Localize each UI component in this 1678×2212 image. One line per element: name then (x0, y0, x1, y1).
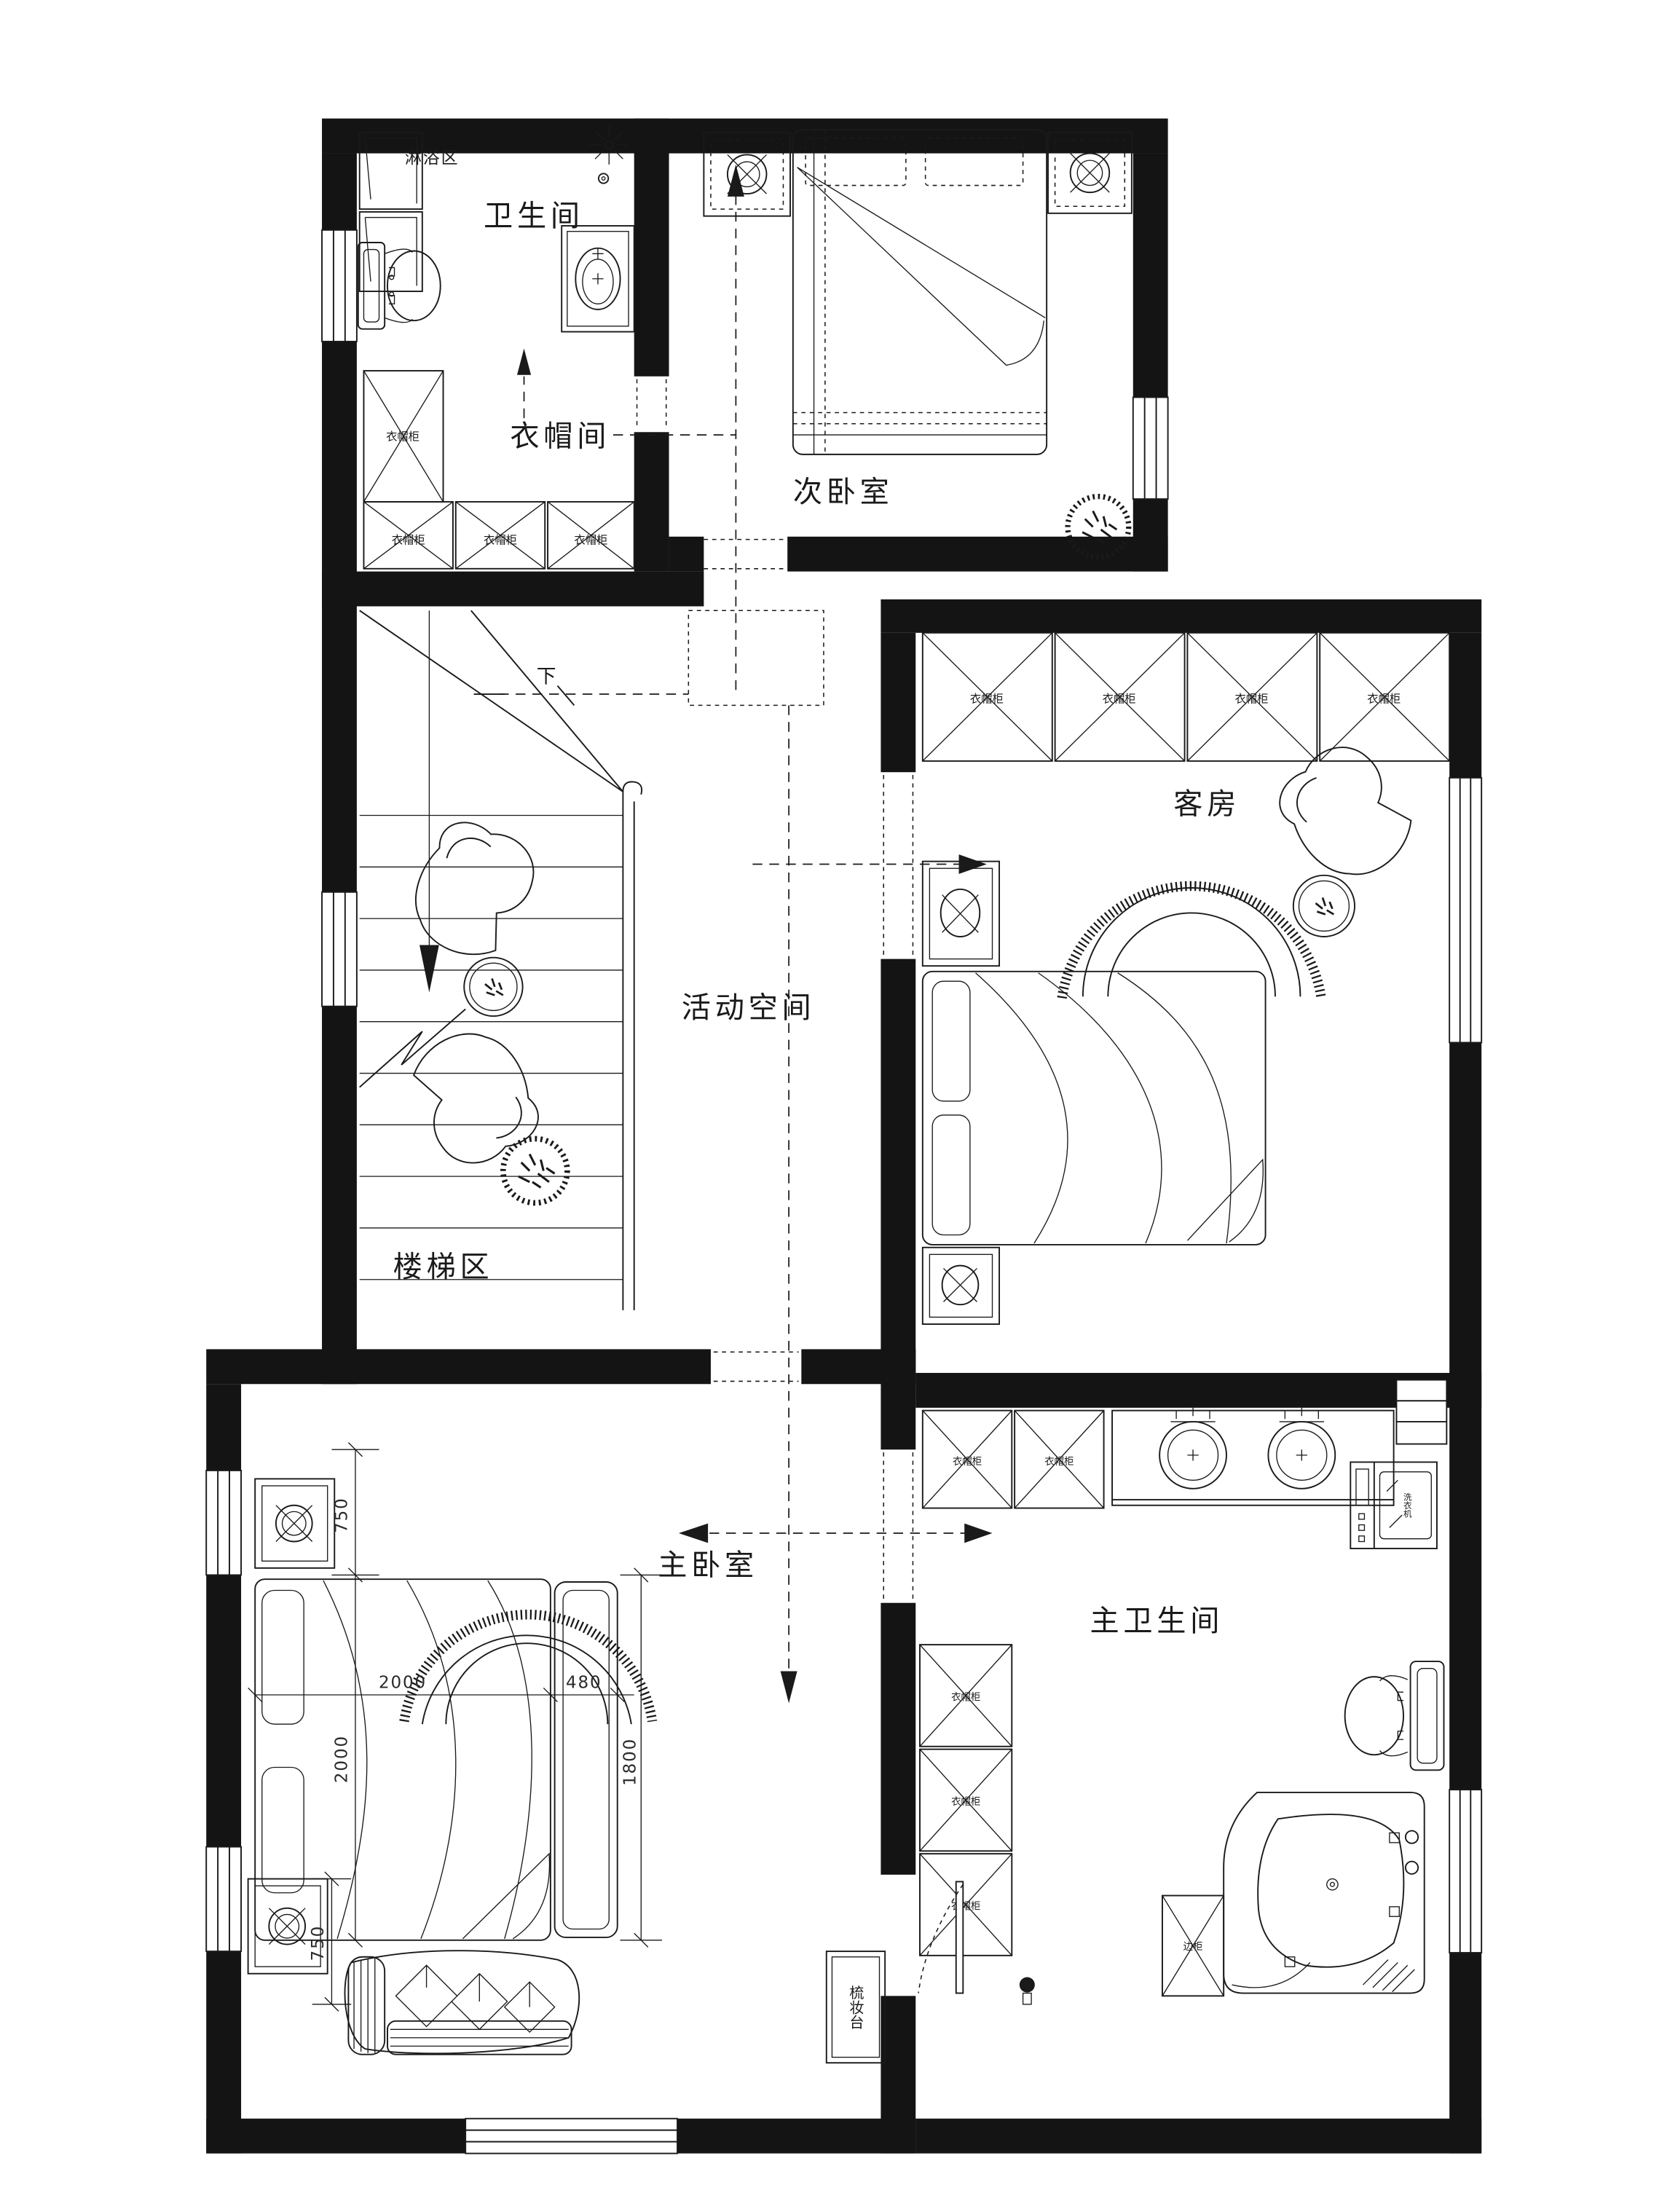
rug-arc (1062, 886, 1321, 998)
bed (793, 130, 1047, 454)
dim-2000-horizontal: 2000 (379, 1673, 427, 1692)
room-label-shower-zone: 淋浴区 (405, 149, 460, 168)
room-label-activity-space: 活动空间 (682, 991, 816, 1025)
sofa (344, 1951, 579, 2055)
wardrobe-cabinet-label: 衣帽柜 (386, 430, 419, 444)
window-corner (1396, 1380, 1446, 1444)
wardrobe-cabinet-label: 衣帽柜 (951, 1796, 980, 1808)
wardrobe-cabinet: 衣帽柜 (1055, 633, 1185, 761)
break-line (360, 1009, 465, 1087)
wardrobe-cabinet: 衣帽柜 (548, 502, 634, 569)
door-knob-icon (1020, 1977, 1035, 1993)
dim-2000-vertical: 2000 (332, 1735, 351, 1783)
activity-space-furniture (396, 809, 567, 1203)
sink-vanity (562, 226, 634, 331)
wardrobe-cabinet: 衣帽柜 (456, 502, 545, 569)
master-bathroom-fixtures: 衣帽柜 衣帽柜 洗衣机 衣帽柜 衣帽柜 (918, 1408, 1443, 2004)
toilet (1345, 1661, 1444, 1770)
room-label-master-bathroom: 主卫生间 (1090, 1605, 1224, 1638)
armchair (396, 809, 547, 970)
dresser-label: 梳妆台 (847, 1985, 864, 2029)
window (465, 2119, 677, 2154)
dim-750-top: 750 (332, 1497, 351, 1533)
wardrobe-cabinet-label: 衣帽柜 (392, 533, 425, 546)
nightstand (255, 1479, 334, 1567)
wardrobe-cabinet: 衣帽柜 (363, 371, 443, 502)
armchair (1267, 732, 1425, 896)
wardrobe-cabinet-label: 衣帽柜 (1103, 693, 1136, 706)
armchair (404, 1018, 548, 1174)
side-cabinet-label: 边柜 (1183, 1941, 1203, 1953)
room-label-bathroom: 卫生间 (484, 200, 584, 233)
dim-750-bottom: 750 (309, 1925, 328, 1961)
room-label-secondary-bedroom: 次卧室 (793, 476, 894, 509)
wardrobe-cabinet-label: 衣帽柜 (1044, 1456, 1074, 1468)
arrow-right-icon (964, 1524, 992, 1543)
round-table (464, 958, 522, 1016)
bed (923, 972, 1266, 1245)
guest-room-furniture: 衣帽柜 衣帽柜 衣帽柜 衣帽柜 (923, 633, 1449, 1324)
washing-machine-label: 洗衣机 (1403, 1493, 1413, 1518)
dimension-lines: 750 2000 2000 480 1800 750 (248, 1443, 662, 2012)
wardrobe-cabinet-label: 衣帽柜 (953, 1456, 982, 1468)
double-sink-vanity (1112, 1408, 1394, 1506)
wardrobe-cabinet: 衣帽柜 (920, 1854, 1012, 1956)
arrow-up-icon (517, 348, 531, 374)
window (322, 230, 357, 342)
stairs-down-label: 下 (537, 666, 556, 688)
wardrobe-cabinet: 衣帽柜 (1015, 1411, 1103, 1508)
wardrobe-cabinet: 衣帽柜 (920, 1645, 1012, 1747)
dresser: 梳妆台 (827, 1951, 885, 2063)
window (206, 1471, 241, 1575)
window (1449, 778, 1481, 1043)
wardrobe-cabinet-label: 衣帽柜 (1234, 693, 1268, 706)
floor-plan-canvas: 衣帽柜 衣帽柜 衣帽柜 衣帽柜 衣帽柜 衣帽柜 (0, 0, 1678, 2212)
wardrobe-cabinet: 衣帽柜 (1187, 633, 1317, 761)
wardrobe-cabinet-label: 衣帽柜 (970, 693, 1004, 706)
windows (206, 230, 1481, 2154)
door-leaf (918, 1881, 1035, 2004)
wardrobe-cabinet-label: 衣帽柜 (484, 533, 517, 546)
stairs (360, 610, 642, 1310)
circulation-lines (474, 165, 993, 1704)
window (206, 1847, 241, 1952)
rug-arc (404, 1615, 653, 1724)
stair-direction-arrow (419, 945, 439, 992)
void-opening (688, 610, 824, 705)
wardrobe-cabinet: 衣帽柜 (920, 1749, 1012, 1851)
wardrobe-cabinet-label: 衣帽柜 (951, 1692, 980, 1704)
nightstand (923, 1248, 999, 1324)
wardrobe-cabinet-label: 衣帽柜 (1367, 693, 1401, 706)
room-label-stair-area: 楼梯区 (393, 1251, 494, 1284)
wardrobe-cabinet-label: 衣帽柜 (574, 533, 607, 546)
floor-plan-svg: 衣帽柜 衣帽柜 衣帽柜 衣帽柜 衣帽柜 衣帽柜 (0, 0, 1678, 2212)
room-label-master-bedroom: 主卧室 (658, 1548, 758, 1582)
window (322, 892, 357, 1007)
round-table (1293, 875, 1355, 937)
side-cabinet: 边柜 (1162, 1896, 1224, 1996)
room-label-guest-room: 客房 (1173, 788, 1240, 822)
arrow-down-icon (781, 1671, 797, 1703)
window (1449, 1790, 1481, 1953)
secondary-bedroom-furniture (704, 130, 1131, 557)
room-label-cloakroom: 衣帽间 (510, 420, 610, 453)
wardrobe-cabinet: 衣帽柜 (923, 1411, 1012, 1508)
dim-480: 480 (566, 1673, 602, 1692)
dim-1800: 1800 (621, 1738, 640, 1786)
wardrobe-cabinet: 衣帽柜 (363, 502, 452, 569)
toilet (358, 243, 441, 329)
bedside-cabinet (555, 1582, 618, 1937)
bathtub (1224, 1792, 1425, 1993)
plant (503, 1138, 567, 1203)
arrow-left-icon (679, 1524, 708, 1543)
window (1133, 397, 1168, 499)
wardrobe-cabinet: 衣帽柜 (923, 633, 1052, 761)
arrow-right-icon (959, 854, 987, 874)
nightstand (923, 862, 999, 967)
wardrobe-cabinet: 衣帽柜 (1320, 633, 1449, 761)
cloakroom-cabinets: 衣帽柜 衣帽柜 衣帽柜 衣帽柜 (363, 371, 634, 569)
